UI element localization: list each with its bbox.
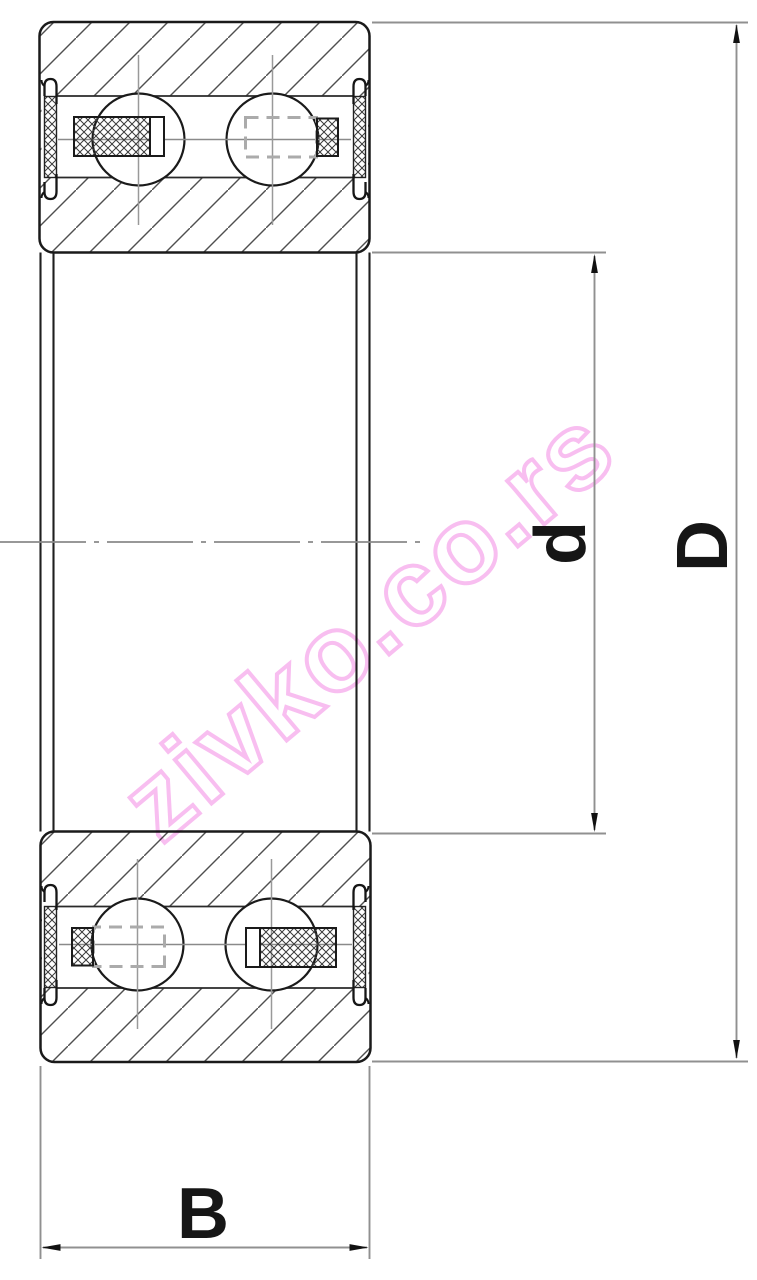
cage-crosshatch-left (74, 117, 150, 156)
cage-tail-left (150, 117, 164, 156)
arrow-up-icon (733, 24, 740, 43)
arrow-down-icon (591, 813, 598, 832)
cage-crosshatch-right (317, 119, 338, 157)
bearing-section-bottom (41, 832, 371, 1063)
dimension-label-d: d (521, 521, 601, 565)
arrow-down-icon (733, 1040, 740, 1059)
technical-drawing-canvas: zivko.co.rs d D B (0, 0, 757, 1280)
arrow-up-icon (591, 254, 598, 273)
dimension-label-D: D (663, 520, 743, 572)
bearing-technical-drawing: zivko.co.rs d D B (0, 0, 757, 1280)
watermark-text: zivko.co.rs (98, 383, 637, 863)
dimension-label-B: B (177, 1174, 229, 1254)
bearing-section-top (40, 22, 370, 253)
arrow-right-icon (350, 1244, 369, 1251)
arrow-left-icon (42, 1244, 61, 1251)
